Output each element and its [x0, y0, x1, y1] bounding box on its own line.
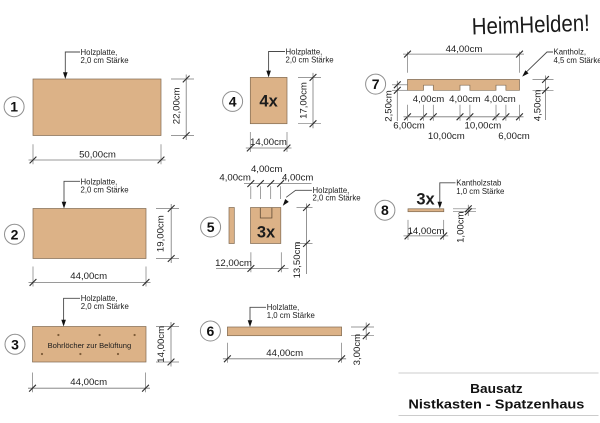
svg-text:14,00cm: 14,00cm: [250, 137, 287, 148]
svg-text:2,0 cm Stärke: 2,0 cm Stärke: [81, 302, 129, 311]
svg-text:1: 1: [10, 99, 18, 115]
svg-text:17,00cm: 17,00cm: [298, 82, 309, 119]
svg-text:4: 4: [229, 93, 237, 109]
svg-text:1,0 cm Stärke: 1,0 cm Stärke: [456, 187, 504, 196]
svg-text:22,00cm: 22,00cm: [172, 87, 183, 124]
svg-text:6,00cm: 6,00cm: [393, 121, 424, 132]
svg-text:13,50cm: 13,50cm: [292, 242, 303, 279]
svg-text:Bausatz: Bausatz: [470, 381, 523, 396]
svg-text:Nistkasten - Spatzenhaus: Nistkasten - Spatzenhaus: [408, 396, 584, 411]
svg-text:1,00cm: 1,00cm: [456, 211, 467, 242]
svg-text:4,5 cm Stärke: 4,5 cm Stärke: [554, 56, 600, 65]
svg-text:2,0 cm Stärke: 2,0 cm Stärke: [286, 56, 334, 65]
svg-text:44,00cm: 44,00cm: [70, 271, 107, 282]
svg-text:6: 6: [207, 323, 215, 339]
svg-text:1,0 cm Stärke: 1,0 cm Stärke: [267, 311, 315, 320]
svg-text:3x: 3x: [416, 190, 435, 208]
svg-text:14,00cm: 14,00cm: [156, 326, 167, 363]
svg-text:4,00cm: 4,00cm: [484, 94, 515, 105]
svg-text:4,50cm: 4,50cm: [532, 90, 543, 121]
svg-text:12,00cm: 12,00cm: [215, 258, 252, 269]
svg-text:2,0 cm Stärke: 2,0 cm Stärke: [81, 56, 129, 65]
svg-text:7: 7: [372, 76, 380, 92]
svg-text:10,00cm: 10,00cm: [465, 121, 502, 132]
svg-text:3x: 3x: [257, 223, 276, 241]
svg-text:3: 3: [11, 336, 19, 352]
svg-text:44,00cm: 44,00cm: [70, 377, 107, 388]
svg-text:Bohrlöcher zur Belüftung: Bohrlöcher zur Belüftung: [48, 341, 132, 350]
svg-text:2: 2: [11, 226, 19, 242]
svg-text:4,00cm: 4,00cm: [282, 173, 313, 184]
svg-text:19,00cm: 19,00cm: [155, 215, 166, 252]
svg-text:8: 8: [381, 202, 389, 218]
svg-text:44,00cm: 44,00cm: [266, 348, 303, 359]
svg-text:2,0 cm Stärke: 2,0 cm Stärke: [81, 186, 129, 195]
svg-text:44,00cm: 44,00cm: [446, 44, 483, 55]
svg-text:2,50cm: 2,50cm: [384, 90, 395, 121]
svg-text:10,00cm: 10,00cm: [428, 131, 465, 142]
svg-text:50,00cm: 50,00cm: [79, 149, 116, 160]
svg-text:5: 5: [207, 219, 215, 235]
svg-text:3,00cm: 3,00cm: [352, 334, 363, 365]
svg-text:4,00cm: 4,00cm: [449, 94, 480, 105]
svg-text:14,00cm: 14,00cm: [408, 226, 445, 237]
svg-text:4x: 4x: [259, 93, 278, 111]
svg-text:4,00cm: 4,00cm: [251, 164, 282, 175]
svg-text:2,0 cm Stärke: 2,0 cm Stärke: [313, 194, 361, 203]
svg-text:4,00cm: 4,00cm: [413, 94, 444, 105]
svg-text:6,00cm: 6,00cm: [498, 131, 529, 142]
svg-text:4,00cm: 4,00cm: [219, 173, 250, 184]
svg-text:HeimHelden!: HeimHelden!: [471, 10, 590, 40]
